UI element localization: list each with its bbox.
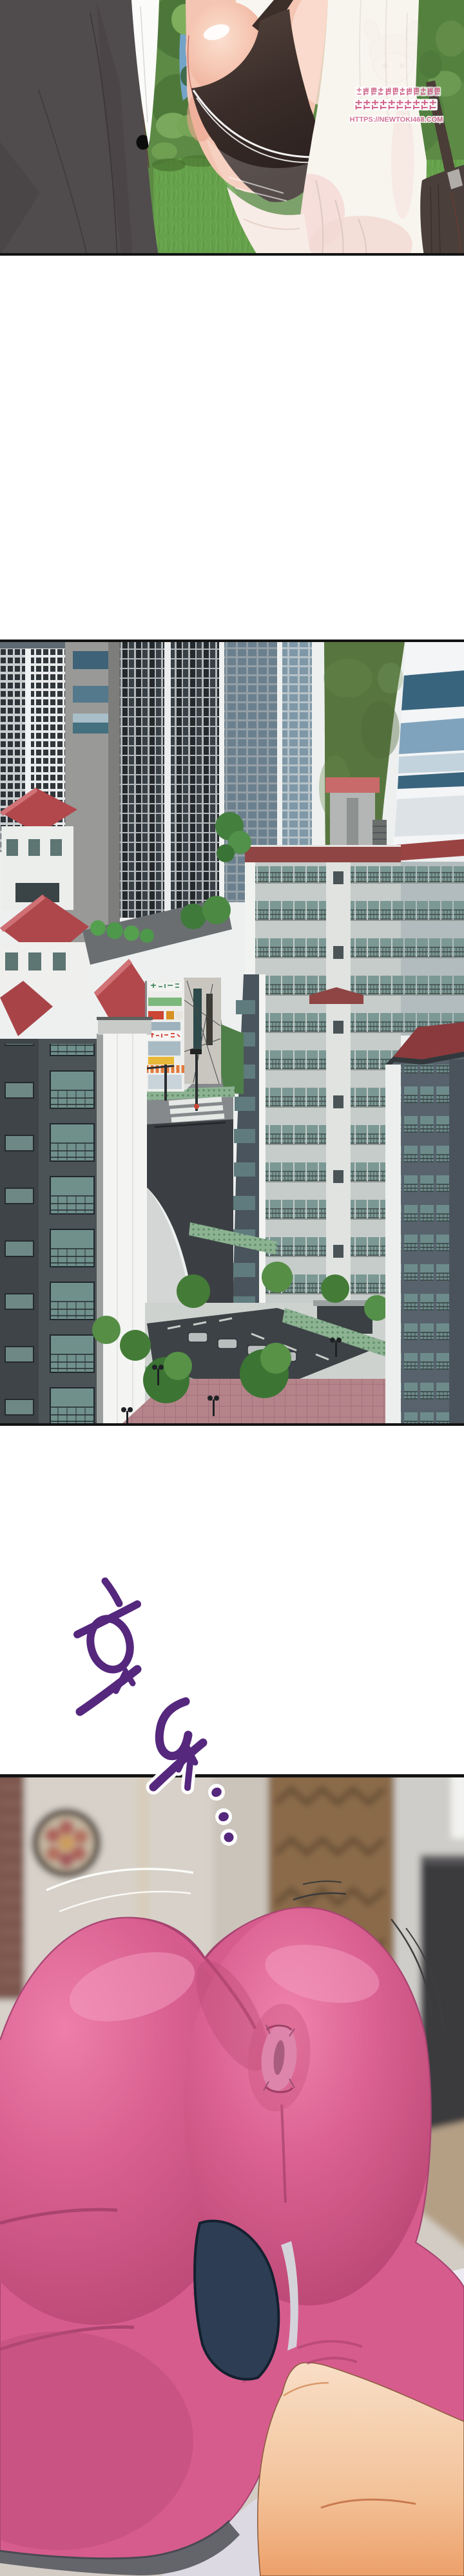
svg-text:HTTPS://NEWTOKI468.COM: HTTPS://NEWTOKI468.COM (350, 116, 443, 124)
